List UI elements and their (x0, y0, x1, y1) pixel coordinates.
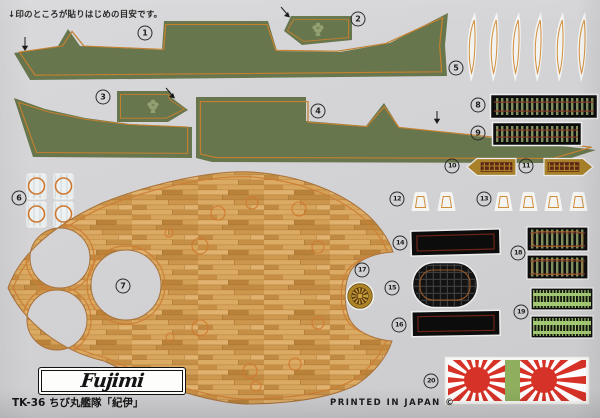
part-number-label-18: 18 (511, 246, 526, 261)
part-number-label-19: 19 (514, 305, 529, 320)
window-sticker-set-19 (531, 288, 593, 338)
part-number-label-12: 12 (390, 192, 405, 207)
railing-sticker-8 (491, 95, 598, 119)
part-number-label-20: 20 (424, 374, 439, 389)
part-number-label-10: 10 (445, 159, 460, 174)
part-number-label-7: 7 (116, 279, 131, 294)
net-sticker-15 (413, 263, 478, 308)
part-number-label-17: 17 (355, 263, 370, 278)
part-number-label-5: 5 (449, 61, 464, 76)
base-sticker-16 (412, 310, 500, 337)
part-number-label-3: 3 (96, 90, 111, 105)
part-number-label-16: 16 (392, 318, 407, 333)
boat-sticker-11 (544, 159, 593, 176)
part-number-label-8: 8 (471, 98, 486, 113)
bow-cap-piece-3 (117, 91, 188, 122)
part-number-label-6: 6 (12, 191, 27, 206)
hull-side-piece-1 (14, 13, 448, 80)
vent-sticker-set-13 (494, 192, 587, 211)
brand-logo-box: Fujimi (38, 367, 186, 395)
sticker-sheet-canvas (0, 0, 600, 418)
part-number-label-9: 9 (471, 126, 486, 141)
base-sticker-14 (411, 229, 501, 256)
part-number-label-13: 13 (477, 192, 492, 207)
ring-sticker-set-6 (27, 174, 73, 227)
railing-sticker-9 (493, 123, 582, 146)
window-sticker-set-18 (527, 227, 588, 279)
part-number-label-1: 1 (138, 26, 153, 41)
application-note: ↓印のところが貼りはじめの目安です。 (8, 8, 162, 20)
boat-sticker-10 (467, 159, 516, 176)
brand-logo: Fujimi (80, 370, 145, 392)
part-number-label-2: 2 (351, 12, 366, 27)
part-number-label-15: 15 (385, 281, 400, 296)
printed-in-japan: PRINTED IN JAPAN © (330, 398, 455, 408)
part-number-label-14: 14 (393, 236, 408, 251)
bow-cap-piece-2 (284, 16, 352, 45)
rosette-sticker-17 (346, 282, 374, 310)
part-number-label-4: 4 (311, 104, 326, 119)
decal-sheet: ↓印のところが貼りはじめの目安です。 1 2 3 4 5 6 7 8 9 10 … (0, 0, 600, 418)
product-code: TK-36 ちび丸艦隊「紀伊」 (12, 395, 144, 410)
part-number-label-11: 11 (519, 159, 534, 174)
vent-sticker-set-12 (411, 192, 455, 211)
wave-sticker-set-5 (467, 12, 586, 82)
